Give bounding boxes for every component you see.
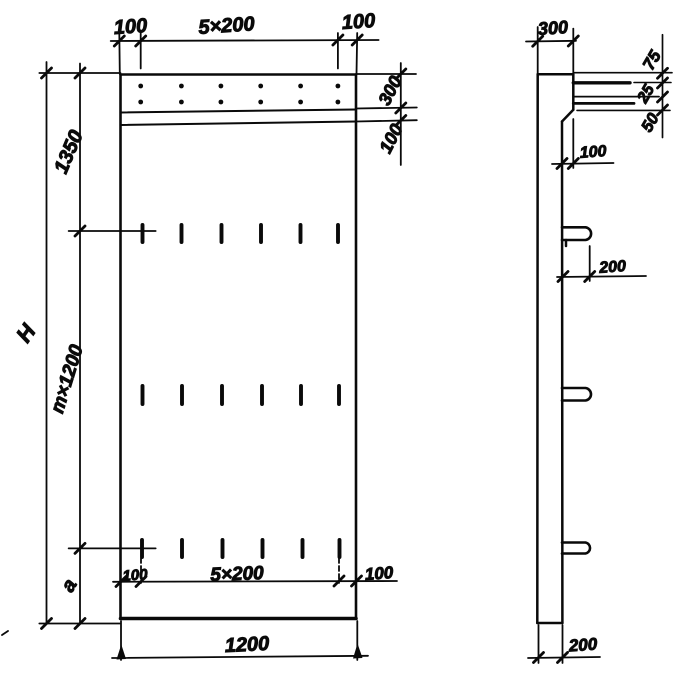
svg-text:100: 100 (341, 10, 376, 34)
svg-text:300: 300 (537, 17, 568, 39)
svg-text:5×200: 5×200 (210, 563, 264, 586)
svg-text:200: 200 (567, 634, 598, 655)
svg-text:200: 200 (598, 258, 627, 277)
svg-text:100: 100 (113, 15, 148, 39)
svg-text:5×200: 5×200 (198, 13, 256, 39)
svg-text:100: 100 (364, 563, 394, 584)
svg-text:100: 100 (122, 566, 149, 585)
svg-text:100: 100 (579, 143, 607, 162)
svg-text:1200: 1200 (224, 633, 270, 657)
